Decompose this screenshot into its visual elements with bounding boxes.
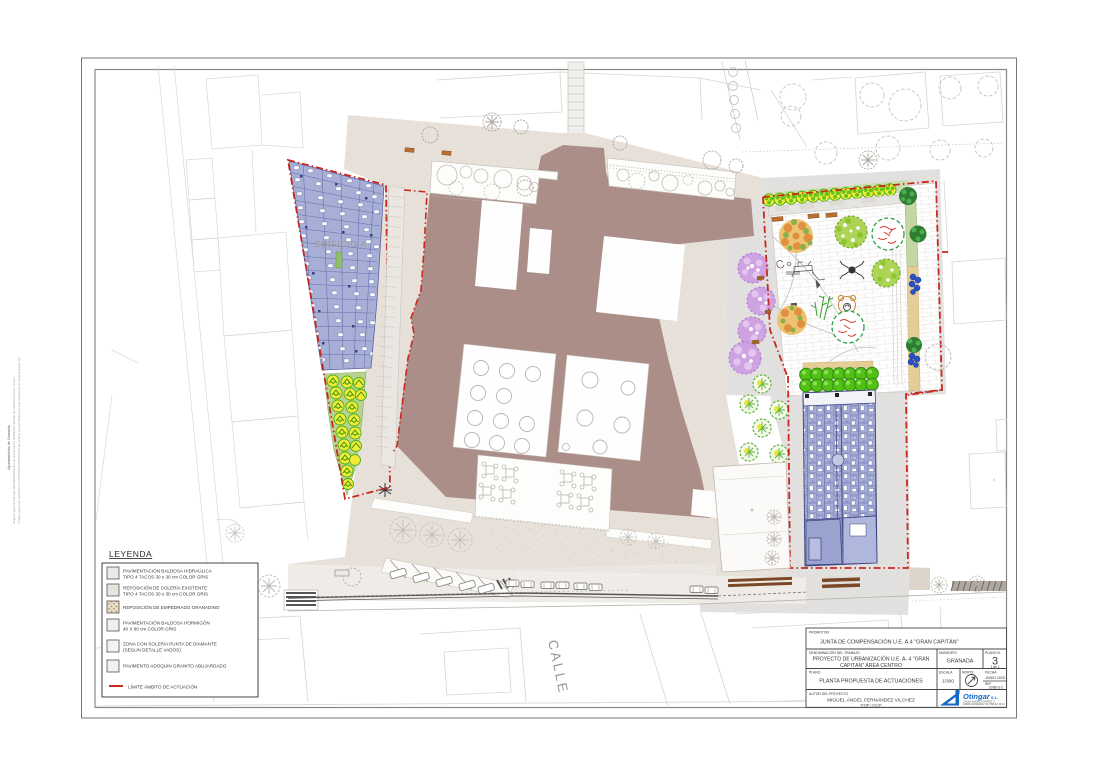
- svg-text:MUNICIPIO: MUNICIPIO: [939, 651, 957, 655]
- svg-text:GRANADA: GRANADA: [947, 659, 974, 665]
- svg-text:NORTE: NORTE: [962, 671, 975, 675]
- svg-text:REPOSICIÓN DE SOLERÍA EXISTENT: REPOSICIÓN DE SOLERÍA EXISTENTE: [123, 585, 207, 591]
- svg-text:PAVIMENTACIÓN BALDOSA HIDRAÚLI: PAVIMENTACIÓN BALDOSA HIDRAÚLICA: [123, 568, 213, 574]
- svg-text:PROYECTO DE URBANIZACIÓN U.E.: PROYECTO DE URBANIZACIÓN U.E. A- 4 "GRAN: [813, 656, 930, 663]
- svg-text:PAVIMENTACIÓN BALDOSA HORMIGÓN: PAVIMENTACIÓN BALDOSA HORMIGÓN: [123, 620, 210, 626]
- svg-text:DENOMINACIÓN DEL TRABAJO: DENOMINACIÓN DEL TRABAJO: [809, 650, 860, 655]
- svg-text:PLANTA PROPUESTA DE ACTUACIONE: PLANTA PROPUESTA DE ACTUACIONES: [819, 679, 923, 685]
- svg-text:1/300: 1/300: [942, 679, 954, 684]
- svg-text:S.L.: S.L.: [991, 695, 998, 700]
- svg-text:Codigo seguro de verificacion: Codigo seguro de verificacion IV7CCO1O3X…: [17, 357, 21, 524]
- svg-text:CAPITÁN" ÁREA CENTRO: CAPITÁN" ÁREA CENTRO: [840, 662, 902, 669]
- svg-text:AUTOR DEL PROYECTO: AUTOR DEL PROYECTO: [809, 692, 848, 696]
- svg-text:FECHA: FECHA: [985, 671, 997, 675]
- svg-text:PAVIMENTO ADOQUÍN GRANITO ABUJ: PAVIMENTO ADOQUÍN GRANITO ABUJARDADO: [123, 663, 227, 669]
- svg-text:ITOP / ICCP: ITOP / ICCP: [861, 704, 882, 708]
- svg-text:EDIFICIO A: EDIFICIO A: [315, 240, 367, 249]
- svg-text:PROMOTOR: PROMOTOR: [809, 631, 829, 635]
- svg-text:TIPO 4 TACOS 30 x 30 cm COLOR: TIPO 4 TACOS 30 x 30 cm COLOR GRIS: [123, 575, 208, 580]
- svg-text:ESCALA: ESCALA: [939, 671, 953, 675]
- svg-text:JUNTA DE COMPENSACIÓN U.E. A.4: JUNTA DE COMPENSACIÓN U.E. A.4 "GRAN CAP…: [820, 639, 959, 646]
- svg-text:ZONA CON SOLERÍA PUNTA DE DIAM: ZONA CON SOLERÍA PUNTA DE DIAMANTE: [123, 641, 217, 647]
- svg-text:Ayuntamiento de Granada: Ayuntamiento de Granada: [7, 424, 11, 470]
- svg-text:MIGUEL ÁNGEL FERNÁNDEZ VILCHEZ: MIGUEL ÁNGEL FERNÁNDEZ VILCHEZ: [827, 697, 915, 704]
- svg-text:LEYENDA: LEYENDA: [109, 549, 152, 559]
- svg-text:TIPO 4 TACOS 30 x 30 cm COLOR: TIPO 4 TACOS 30 x 30 cm COLOR GRIS: [123, 592, 208, 597]
- svg-text:40 X 60 cm COLOR GRIS: 40 X 60 cm COLOR GRIS: [123, 627, 176, 632]
- svg-text:(SEGUN DETALLE VADOS): (SEGUN DETALLE VADOS): [123, 648, 181, 653]
- svg-text:PLANO N.: PLANO N.: [985, 651, 1001, 655]
- svg-text:Registro general Entrada 2023/: Registro general Entrada 2023/000000 Fec…: [12, 377, 16, 524]
- svg-text:PLANO: PLANO: [809, 671, 821, 675]
- svg-text:1 de 1: 1 de 1: [991, 665, 1000, 669]
- svg-text:18009 GRANADA TLF 958 22 33 44: 18009 GRANADA TLF 958 22 33 44: [963, 702, 1005, 706]
- svg-text:3386-U-2: 3386-U-2: [989, 686, 1003, 690]
- svg-text:JUNIO 2025: JUNIO 2025: [985, 676, 1005, 680]
- svg-text:LÍMITE ÁMBITO DE ACTUACIÓN: LÍMITE ÁMBITO DE ACTUACIÓN: [128, 684, 197, 690]
- svg-text:REPOSICIÓN DE EMPEDRADO GRANAD: REPOSICIÓN DE EMPEDRADO GRANADINO: [123, 604, 220, 610]
